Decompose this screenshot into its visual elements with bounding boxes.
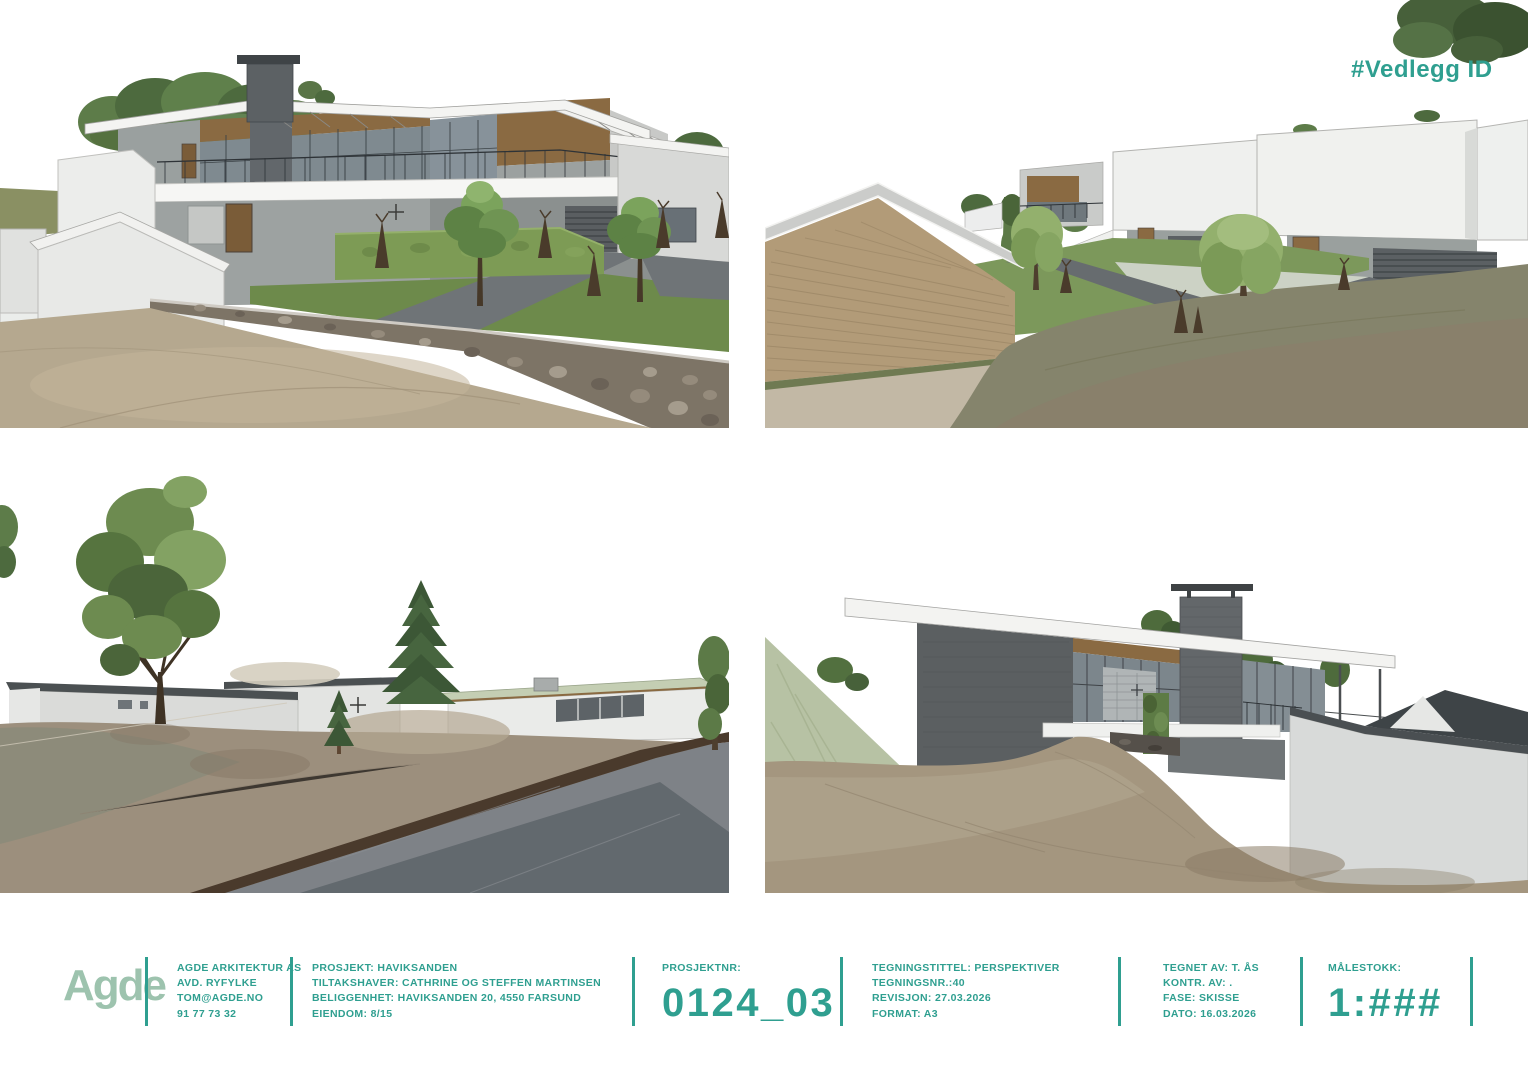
divider-bar: [1470, 957, 1473, 1026]
drawing-info: TEGNINGSTITTEL: PERSPEKTIVER TEGNINGSNR.…: [872, 961, 1060, 1022]
company-logo: Agde: [63, 964, 165, 1008]
office-branch: AVD. RYFYLKE: [177, 976, 302, 991]
divider-bar: [145, 957, 148, 1026]
corner-tree: [1393, 0, 1528, 64]
office-email: TOM@AGDE.NO: [177, 991, 302, 1006]
project-property: EIENDOM: 8/15: [312, 1007, 601, 1022]
office-phone: 91 77 73 32: [177, 1007, 302, 1022]
divider-bar: [1118, 957, 1121, 1026]
office-info: AGDE ARKITEKTUR AS AVD. RYFYLKE TOM@AGDE…: [177, 961, 302, 1022]
render-perspective-1: [0, 0, 729, 428]
scale-block: MÅLESTOKK: 1:###: [1328, 961, 1443, 1023]
project-number-value: 0124_03: [662, 983, 835, 1023]
phase: FASE: SKISSE: [1163, 991, 1259, 1006]
drawing-number: TEGNINGSNR.:40: [872, 976, 1060, 991]
checked-by: KONTR. AV: .: [1163, 976, 1259, 991]
drawing-format: FORMAT: A3: [872, 1007, 1060, 1022]
project-location: BELIGGENHET: HAVIKSANDEN 20, 4550 FARSUN…: [312, 991, 601, 1006]
divider-bar: [840, 957, 843, 1026]
credits-info: TEGNET AV: T. ÅS KONTR. AV: . FASE: SKIS…: [1163, 961, 1259, 1022]
office-name: AGDE ARKITEKTUR AS: [177, 961, 302, 976]
attachment-id-label: #Vedlegg ID: [1351, 56, 1493, 84]
entry-door: [226, 204, 252, 252]
divider-bar: [1300, 957, 1303, 1026]
drawn-by: TEGNET AV: T. ÅS: [1163, 961, 1259, 976]
render-perspective-3: [0, 432, 729, 893]
drawing-sheet: #Vedlegg ID Agde AGDE ARKITEKTUR AS AVD.…: [0, 0, 1528, 1080]
drawing-title: TEGNINGSTITTEL: PERSPEKTIVER: [872, 961, 1060, 976]
scale-value: 1:###: [1328, 983, 1443, 1023]
project-number-block: PROSJEKTNR: 0124_03: [662, 961, 835, 1023]
chimney: [1171, 584, 1253, 747]
render-perspective-4: [765, 432, 1528, 893]
project-client: TILTAKSHAVER: CATHRINE OG STEFFEN MARTIN…: [312, 976, 601, 991]
drawing-revision: REVISJON: 27.03.2026: [872, 991, 1060, 1006]
garage-door: [188, 206, 224, 244]
project-name: PROSJEKT: HAVIKSANDEN: [312, 961, 601, 976]
scale-label: MÅLESTOKK:: [1328, 961, 1443, 976]
project-info: PROSJEKT: HAVIKSANDEN TILTAKSHAVER: CATH…: [312, 961, 601, 1022]
project-number-label: PROSJEKTNR:: [662, 961, 835, 976]
divider-bar: [632, 957, 635, 1026]
chimney-through-glass: [250, 122, 292, 184]
date: DATO: 16.03.2026: [1163, 1007, 1259, 1022]
